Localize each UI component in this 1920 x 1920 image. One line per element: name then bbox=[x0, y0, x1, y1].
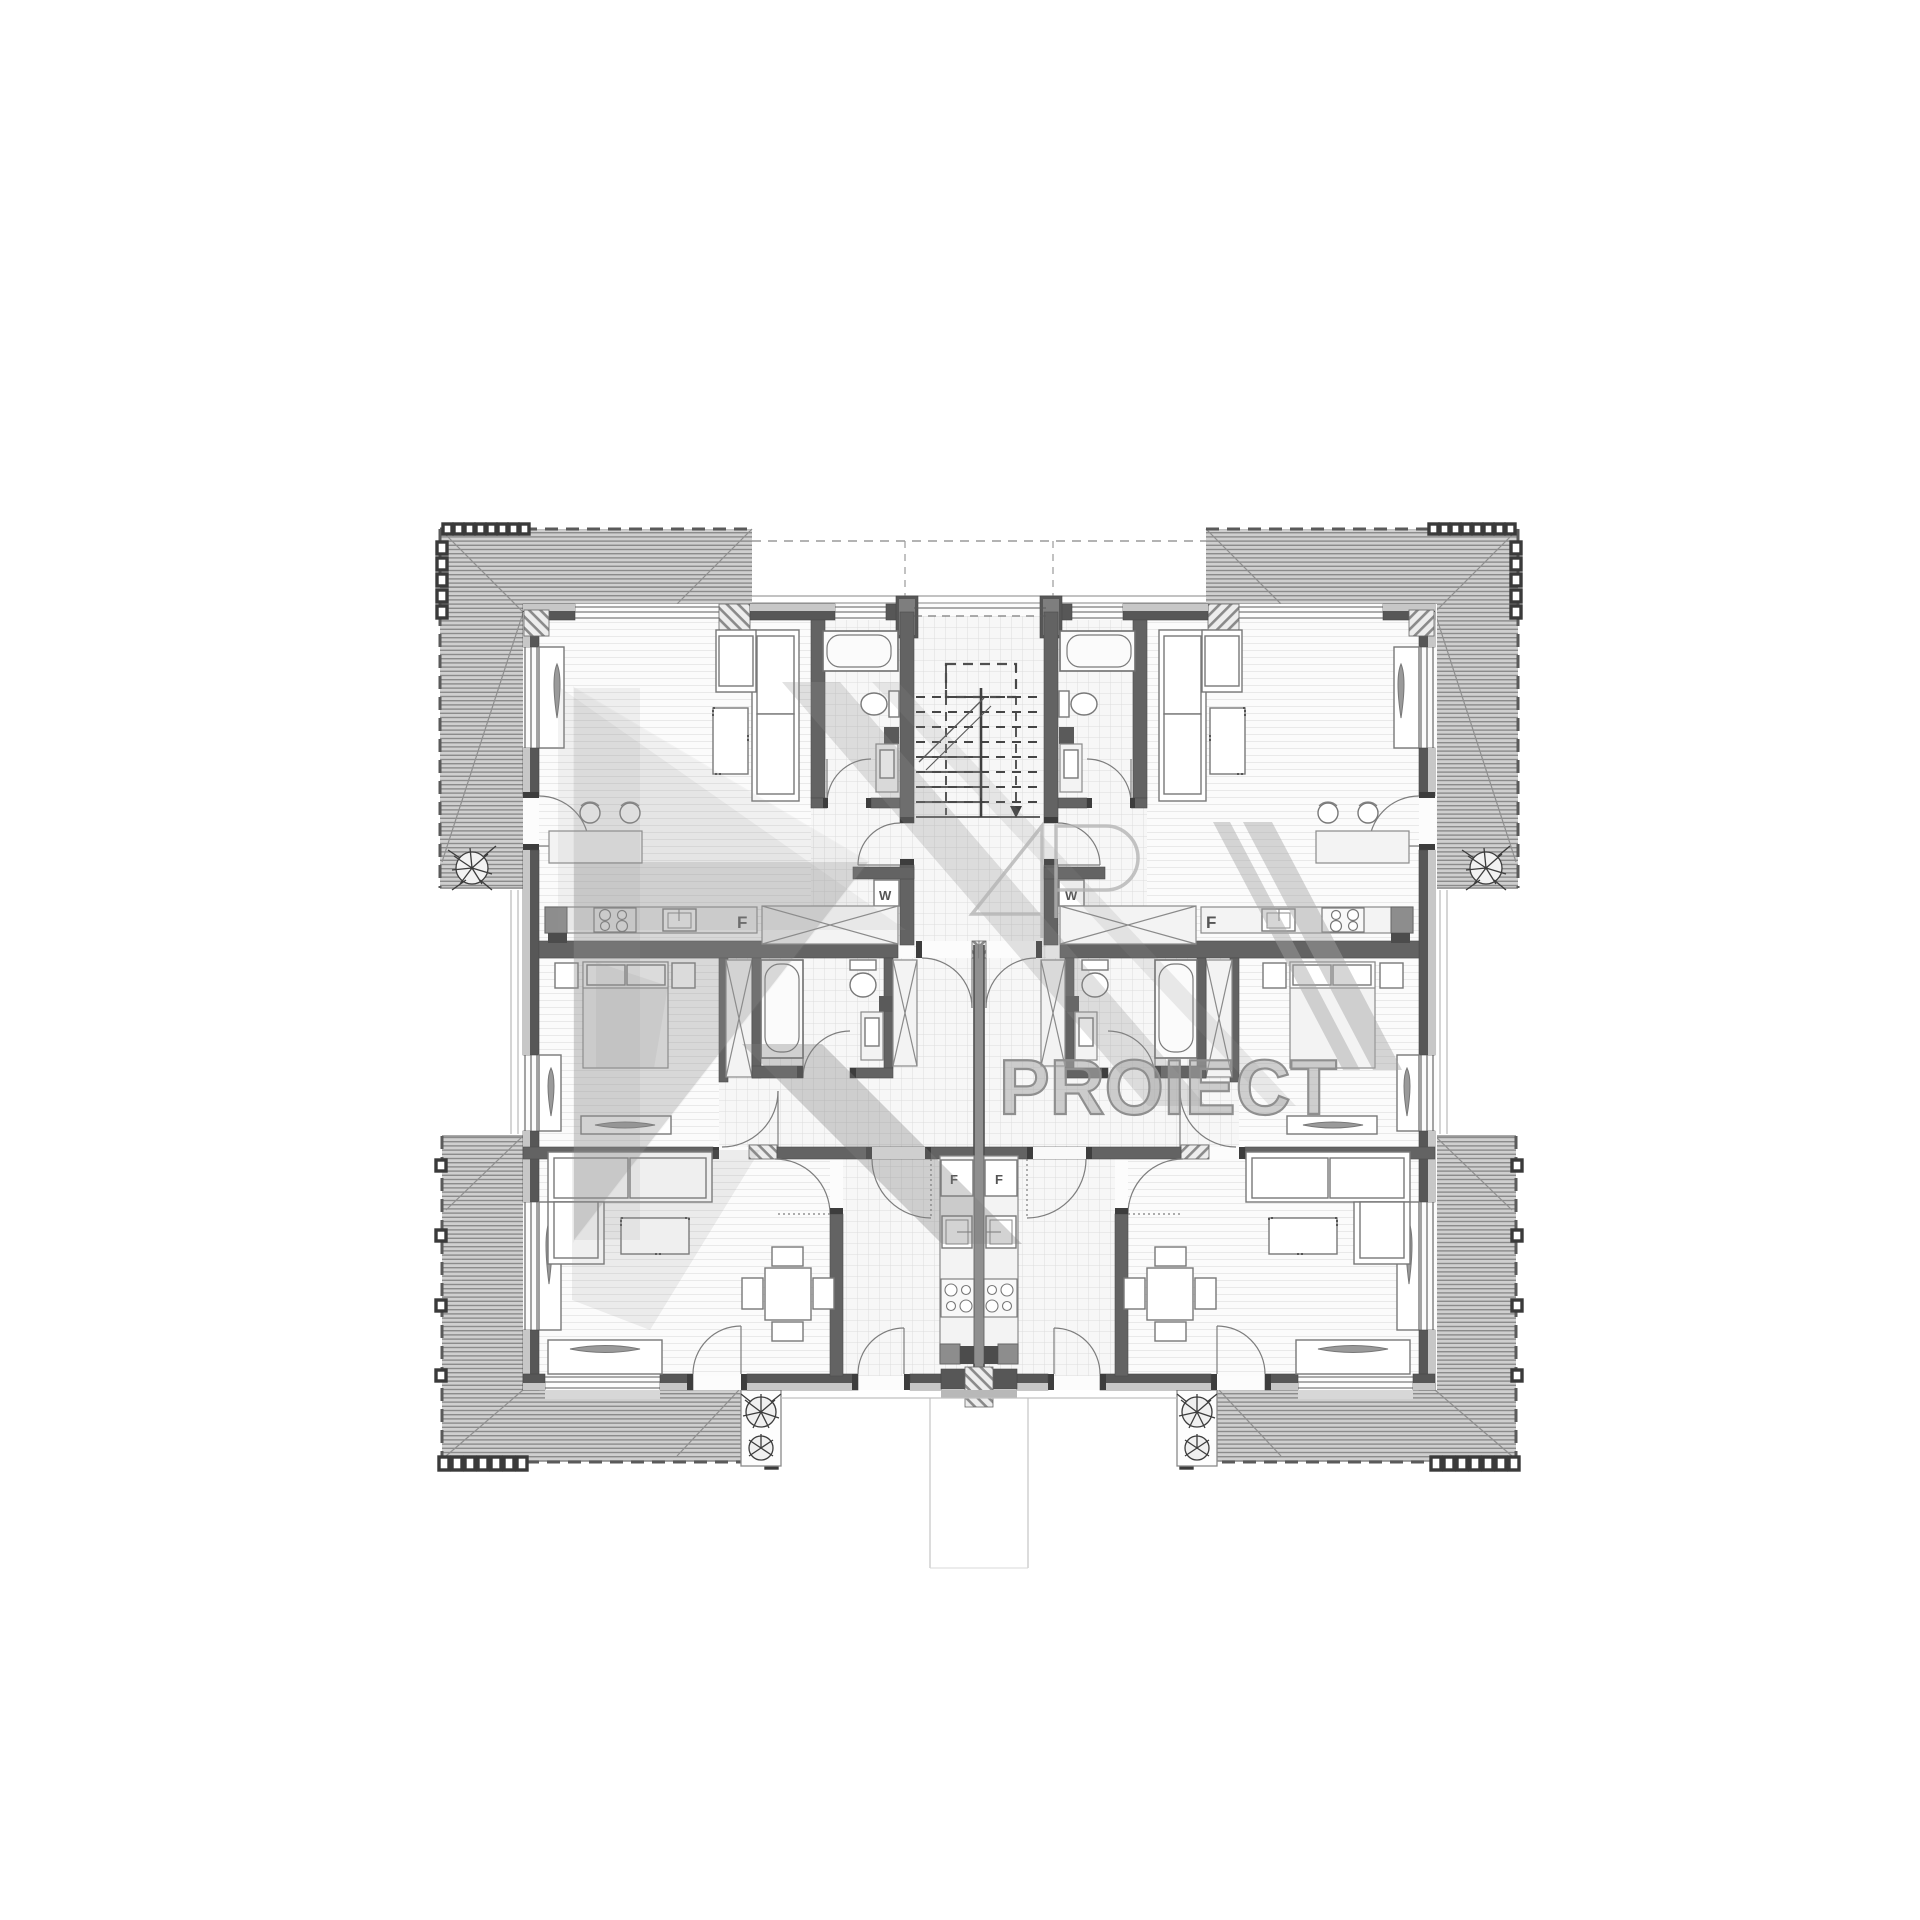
svg-text:W: W bbox=[879, 888, 892, 903]
svg-text:F: F bbox=[995, 1172, 1003, 1187]
svg-text:PROIECT: PROIECT bbox=[999, 1043, 1337, 1131]
svg-text:F: F bbox=[1206, 913, 1216, 932]
